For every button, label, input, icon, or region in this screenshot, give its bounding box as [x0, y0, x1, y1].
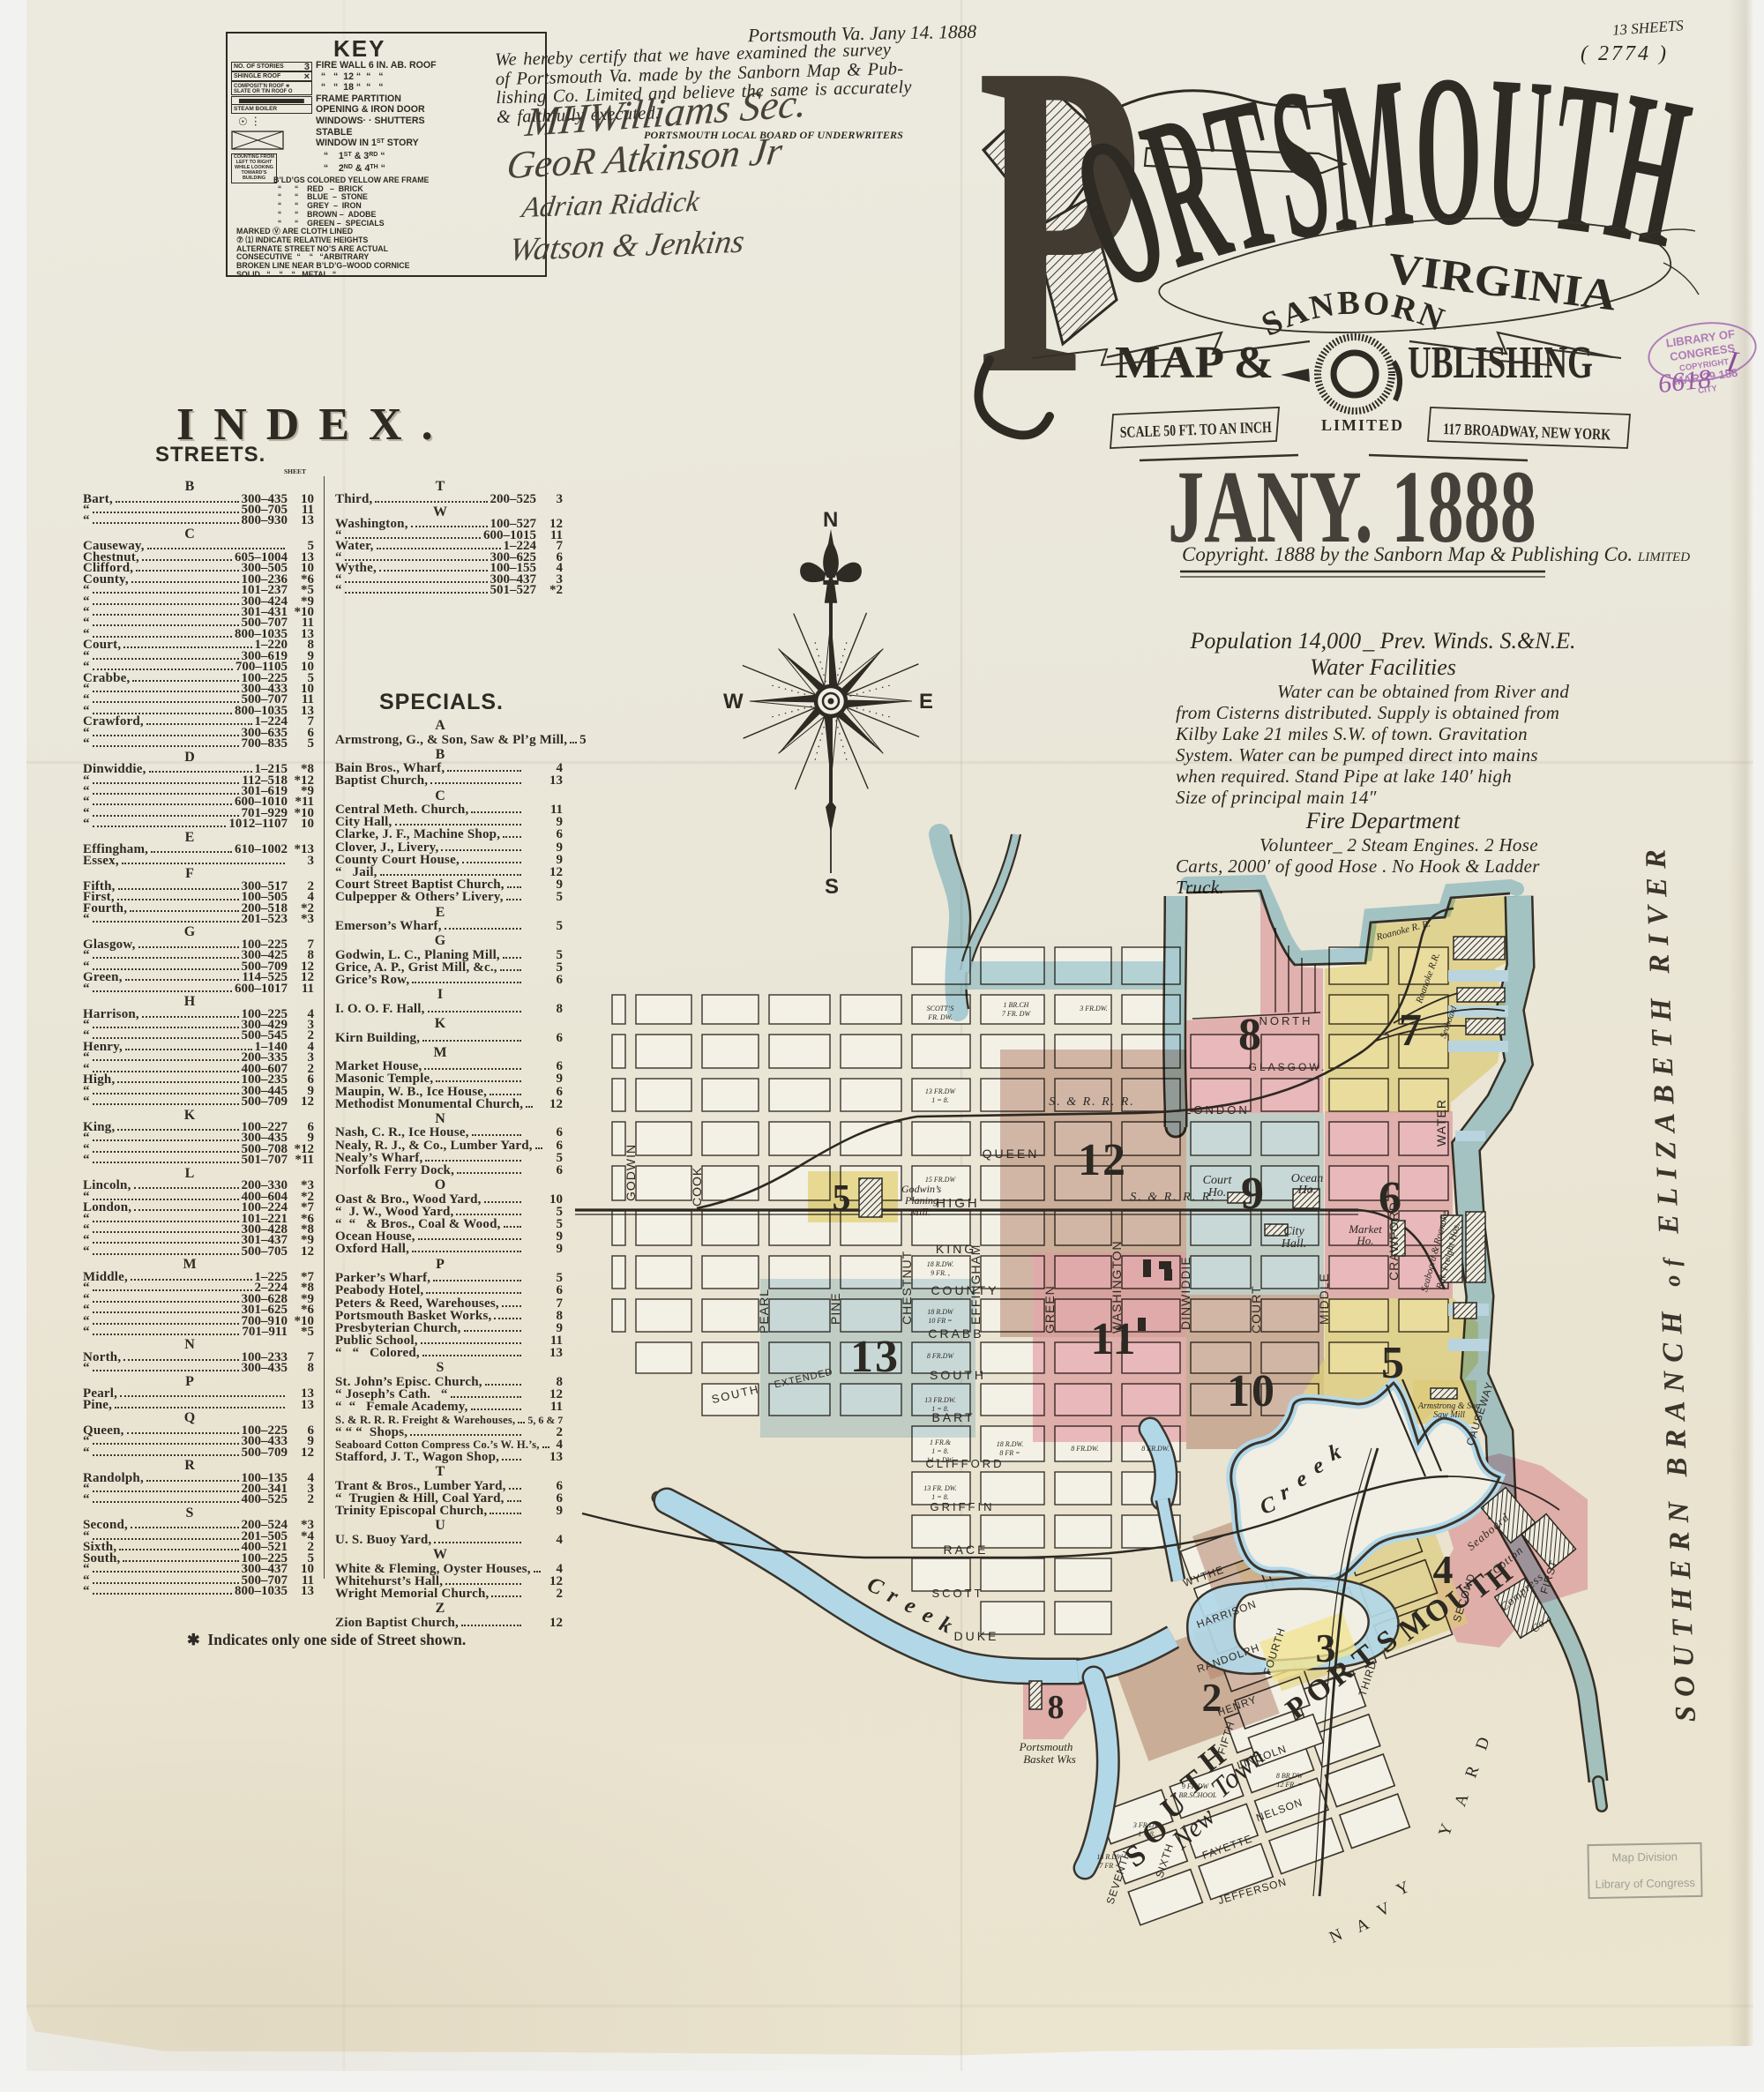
- svg-text:8: 8: [1238, 1010, 1263, 1060]
- svg-text:N: N: [1327, 1924, 1347, 1947]
- svg-text:8 FR.DW.: 8 FR.DW.: [1141, 1445, 1170, 1453]
- svg-text:9 FR. ,: 9 FR. ,: [931, 1269, 950, 1277]
- svg-text:15 FR.DW: 15 FR.DW: [925, 1176, 957, 1184]
- svg-text:7: 7: [1399, 1005, 1424, 1056]
- svg-text:MIDDLE: MIDDLE: [1317, 1273, 1331, 1325]
- svg-text:7 FR =: 7 FR =: [1099, 1862, 1119, 1870]
- svg-text:GODWIN: GODWIN: [624, 1144, 638, 1201]
- svg-text:e: e: [919, 1603, 939, 1629]
- svg-text:13 FR.DW: 13 FR.DW: [925, 1087, 957, 1095]
- svg-text:Planing: Planing: [904, 1194, 938, 1207]
- svg-text:Mill.: Mill.: [909, 1206, 931, 1218]
- svg-text:Portsmouth: Portsmouth: [1019, 1740, 1073, 1753]
- svg-text:V: V: [1374, 1898, 1394, 1921]
- svg-text:COURT: COURT: [1249, 1285, 1263, 1334]
- svg-text:SOUTHERN BRANCH of ELIZABET: SOUTHERN BRANCH of ELIZABETH RIVER: [1640, 840, 1702, 1722]
- svg-text:Saw Mill: Saw Mill: [1433, 1410, 1465, 1420]
- svg-text:Ho.: Ho.: [1356, 1234, 1373, 1247]
- svg-text:7 FR. DW: 7 FR. DW: [1002, 1010, 1032, 1018]
- svg-text:Ho.: Ho.: [1297, 1184, 1317, 1197]
- svg-text:1 = 8.: 1 = 8.: [931, 1405, 948, 1413]
- svg-text:Hall.: Hall.: [1281, 1237, 1306, 1251]
- svg-text:GLASGOW.: GLASGOW.: [1249, 1061, 1327, 1073]
- svg-text:1 = 8.: 1 = 8.: [931, 1493, 948, 1501]
- svg-text:RACE: RACE: [944, 1543, 989, 1557]
- svg-text:1 BR.CH: 1 BR.CH: [1004, 1001, 1030, 1009]
- svg-text:13: 13: [850, 1332, 900, 1382]
- svg-text:S. & R. R. R.: S. & R. R. R.: [1130, 1191, 1216, 1204]
- svg-text:CHESTNUT: CHESTNUT: [900, 1251, 914, 1325]
- svg-text:Basket Wks: Basket Wks: [1023, 1752, 1076, 1766]
- svg-text:12 FR. =: 12 FR. =: [1276, 1781, 1302, 1789]
- svg-text:3 FR.DW: 3 FR.DW: [1132, 1821, 1162, 1829]
- svg-text:13 FR. DW.: 13 FR. DW.: [923, 1484, 957, 1492]
- svg-text:D: D: [1472, 1733, 1494, 1752]
- svg-text:HIGH: HIGH: [936, 1196, 980, 1211]
- svg-text:Y: Y: [1435, 1819, 1457, 1839]
- svg-text:CRABB: CRABB: [928, 1326, 983, 1341]
- svg-text:SCOTT: SCOTT: [931, 1587, 983, 1600]
- svg-text:18 R.DW: 18 R.DW: [927, 1308, 954, 1316]
- svg-text:C: C: [863, 1573, 888, 1601]
- svg-text:DUKE: DUKE: [954, 1629, 999, 1643]
- svg-text:10: 10: [1227, 1366, 1276, 1416]
- svg-text:Court: Court: [1203, 1174, 1233, 1187]
- svg-text:Godwin’s: Godwin’s: [901, 1183, 941, 1195]
- svg-text:e: e: [901, 1593, 922, 1619]
- svg-text:SCOTT’S: SCOTT’S: [927, 1005, 954, 1012]
- svg-text:8 FR.DW: 8 FR.DW: [927, 1352, 955, 1360]
- svg-text:KING: KING: [936, 1242, 976, 1256]
- svg-text:18 R.DW.: 18 R.DW.: [997, 1440, 1024, 1448]
- svg-text:1 FR.&: 1 FR.&: [930, 1438, 952, 1446]
- svg-text:COUNTY: COUNTY: [931, 1283, 998, 1297]
- svg-text:r: r: [884, 1583, 903, 1609]
- svg-text:1 = 8.: 1 = 8.: [931, 1447, 948, 1455]
- svg-text:5: 5: [833, 1178, 853, 1219]
- svg-text:8 BR.DW: 8 BR.DW: [1276, 1772, 1304, 1780]
- svg-text:5: 5: [1381, 1338, 1406, 1388]
- svg-text:COOK: COOK: [690, 1167, 704, 1207]
- svg-text:PINE: PINE: [828, 1292, 842, 1325]
- svg-text:3 FR.DW.: 3 FR.DW.: [1079, 1005, 1108, 1012]
- svg-text:City: City: [1283, 1225, 1304, 1238]
- svg-text:PEARL: PEARL: [757, 1289, 771, 1334]
- svg-text:9: 9: [1241, 1169, 1266, 1219]
- svg-text:GRIFFIN: GRIFFIN: [931, 1500, 995, 1513]
- svg-text:18 R.DW: 18 R.DW: [1096, 1853, 1124, 1861]
- svg-text:12: 12: [1078, 1135, 1127, 1185]
- svg-text:10 FR =: 10 FR =: [928, 1317, 952, 1325]
- svg-text:Y: Y: [1394, 1877, 1414, 1900]
- svg-text:SOUTH: SOUTH: [930, 1368, 986, 1382]
- svg-text:R: R: [1461, 1762, 1484, 1781]
- svg-text:13 FR.DW.: 13 FR.DW.: [924, 1396, 956, 1404]
- svg-text:14 = DW.: 14 = DW.: [926, 1456, 953, 1464]
- svg-text:A: A: [1353, 1914, 1373, 1937]
- svg-text:NORTH: NORTH: [1259, 1014, 1313, 1027]
- svg-text:9 FR.DW: 9 FR.DW: [1182, 1782, 1210, 1790]
- svg-text:DINWIDDIE: DINWIDDIE: [1178, 1256, 1192, 1330]
- svg-text:LONDON: LONDON: [1185, 1103, 1250, 1117]
- svg-text:GREEN: GREEN: [1043, 1285, 1057, 1334]
- svg-text:11: 11: [1090, 1314, 1137, 1364]
- svg-text:QUEEN: QUEEN: [983, 1147, 1040, 1161]
- svg-text:1 = 8.: 1 = 8.: [1138, 1830, 1155, 1838]
- svg-text:Ho.: Ho.: [1207, 1186, 1227, 1199]
- svg-text:A: A: [1451, 1789, 1473, 1809]
- svg-text:1 BR.SCHOOL: 1 BR.SCHOOL: [1174, 1791, 1217, 1799]
- svg-text:1 = 8.: 1 = 8.: [931, 1096, 948, 1104]
- svg-text:S. & R. R. R.: S. & R. R. R.: [1049, 1095, 1135, 1109]
- svg-text:8 FR.DW.: 8 FR.DW.: [1071, 1445, 1099, 1453]
- svg-text:8: 8: [1048, 1689, 1066, 1726]
- svg-text:WATER: WATER: [1434, 1099, 1448, 1147]
- svg-text:8 FR =: 8 FR =: [999, 1449, 1020, 1457]
- svg-text:FR. DW.: FR. DW.: [927, 1013, 953, 1021]
- svg-text:6: 6: [1379, 1173, 1403, 1223]
- svg-text:18 R.DW.: 18 R.DW.: [927, 1260, 954, 1268]
